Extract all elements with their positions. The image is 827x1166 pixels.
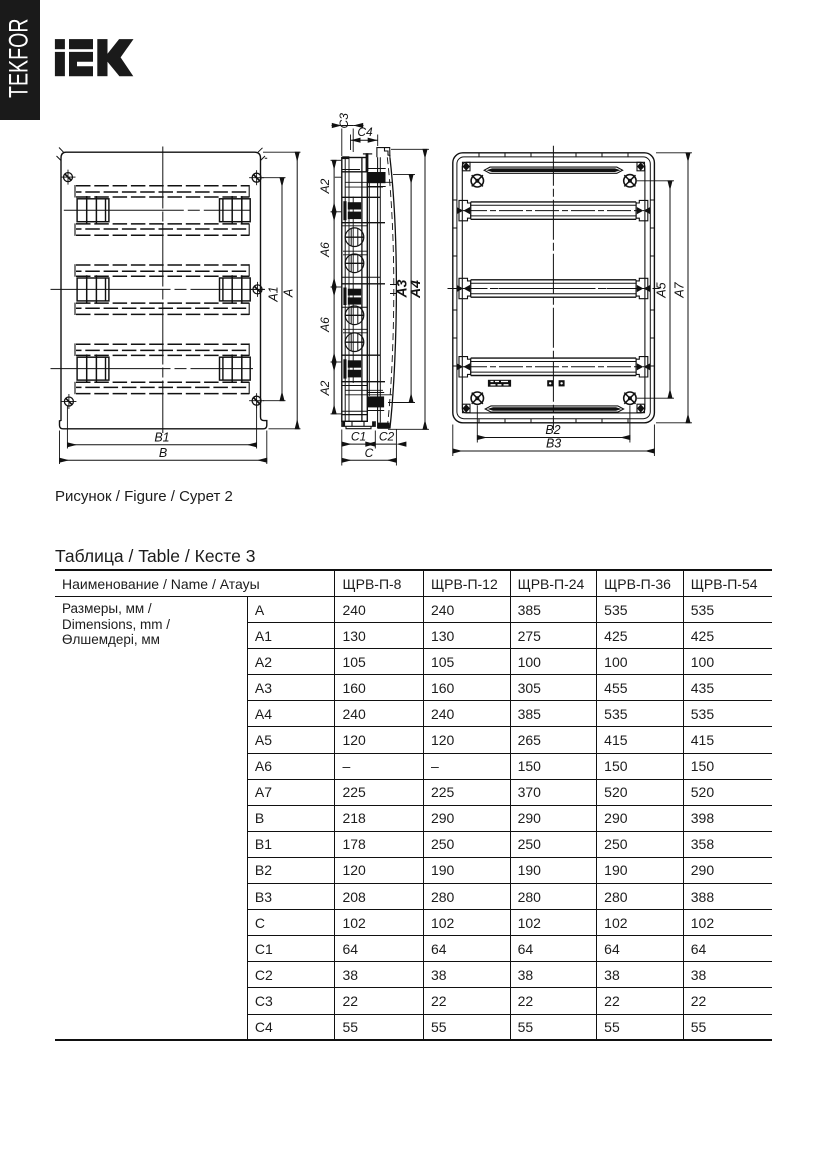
svg-text:A4: A4 (407, 280, 423, 299)
svg-text:B: B (159, 446, 167, 460)
svg-text:C1: C1 (351, 430, 366, 444)
svg-text:C4: C4 (357, 125, 373, 139)
svg-text:B1: B1 (154, 431, 169, 445)
svg-text:C: C (365, 446, 374, 460)
svg-text:A2: A2 (318, 178, 332, 194)
svg-text:A1: A1 (267, 286, 281, 302)
svg-text:B2: B2 (545, 423, 560, 437)
svg-text:A6: A6 (318, 242, 332, 258)
svg-text:A2: A2 (318, 380, 332, 396)
svg-text:A6: A6 (318, 317, 332, 333)
svg-text:C3: C3 (337, 113, 351, 129)
svg-text:A5: A5 (654, 282, 668, 298)
svg-text:B3: B3 (546, 437, 561, 451)
svg-text:C2: C2 (379, 430, 395, 444)
svg-text:A7: A7 (672, 281, 686, 298)
svg-text:A: A (282, 289, 296, 298)
